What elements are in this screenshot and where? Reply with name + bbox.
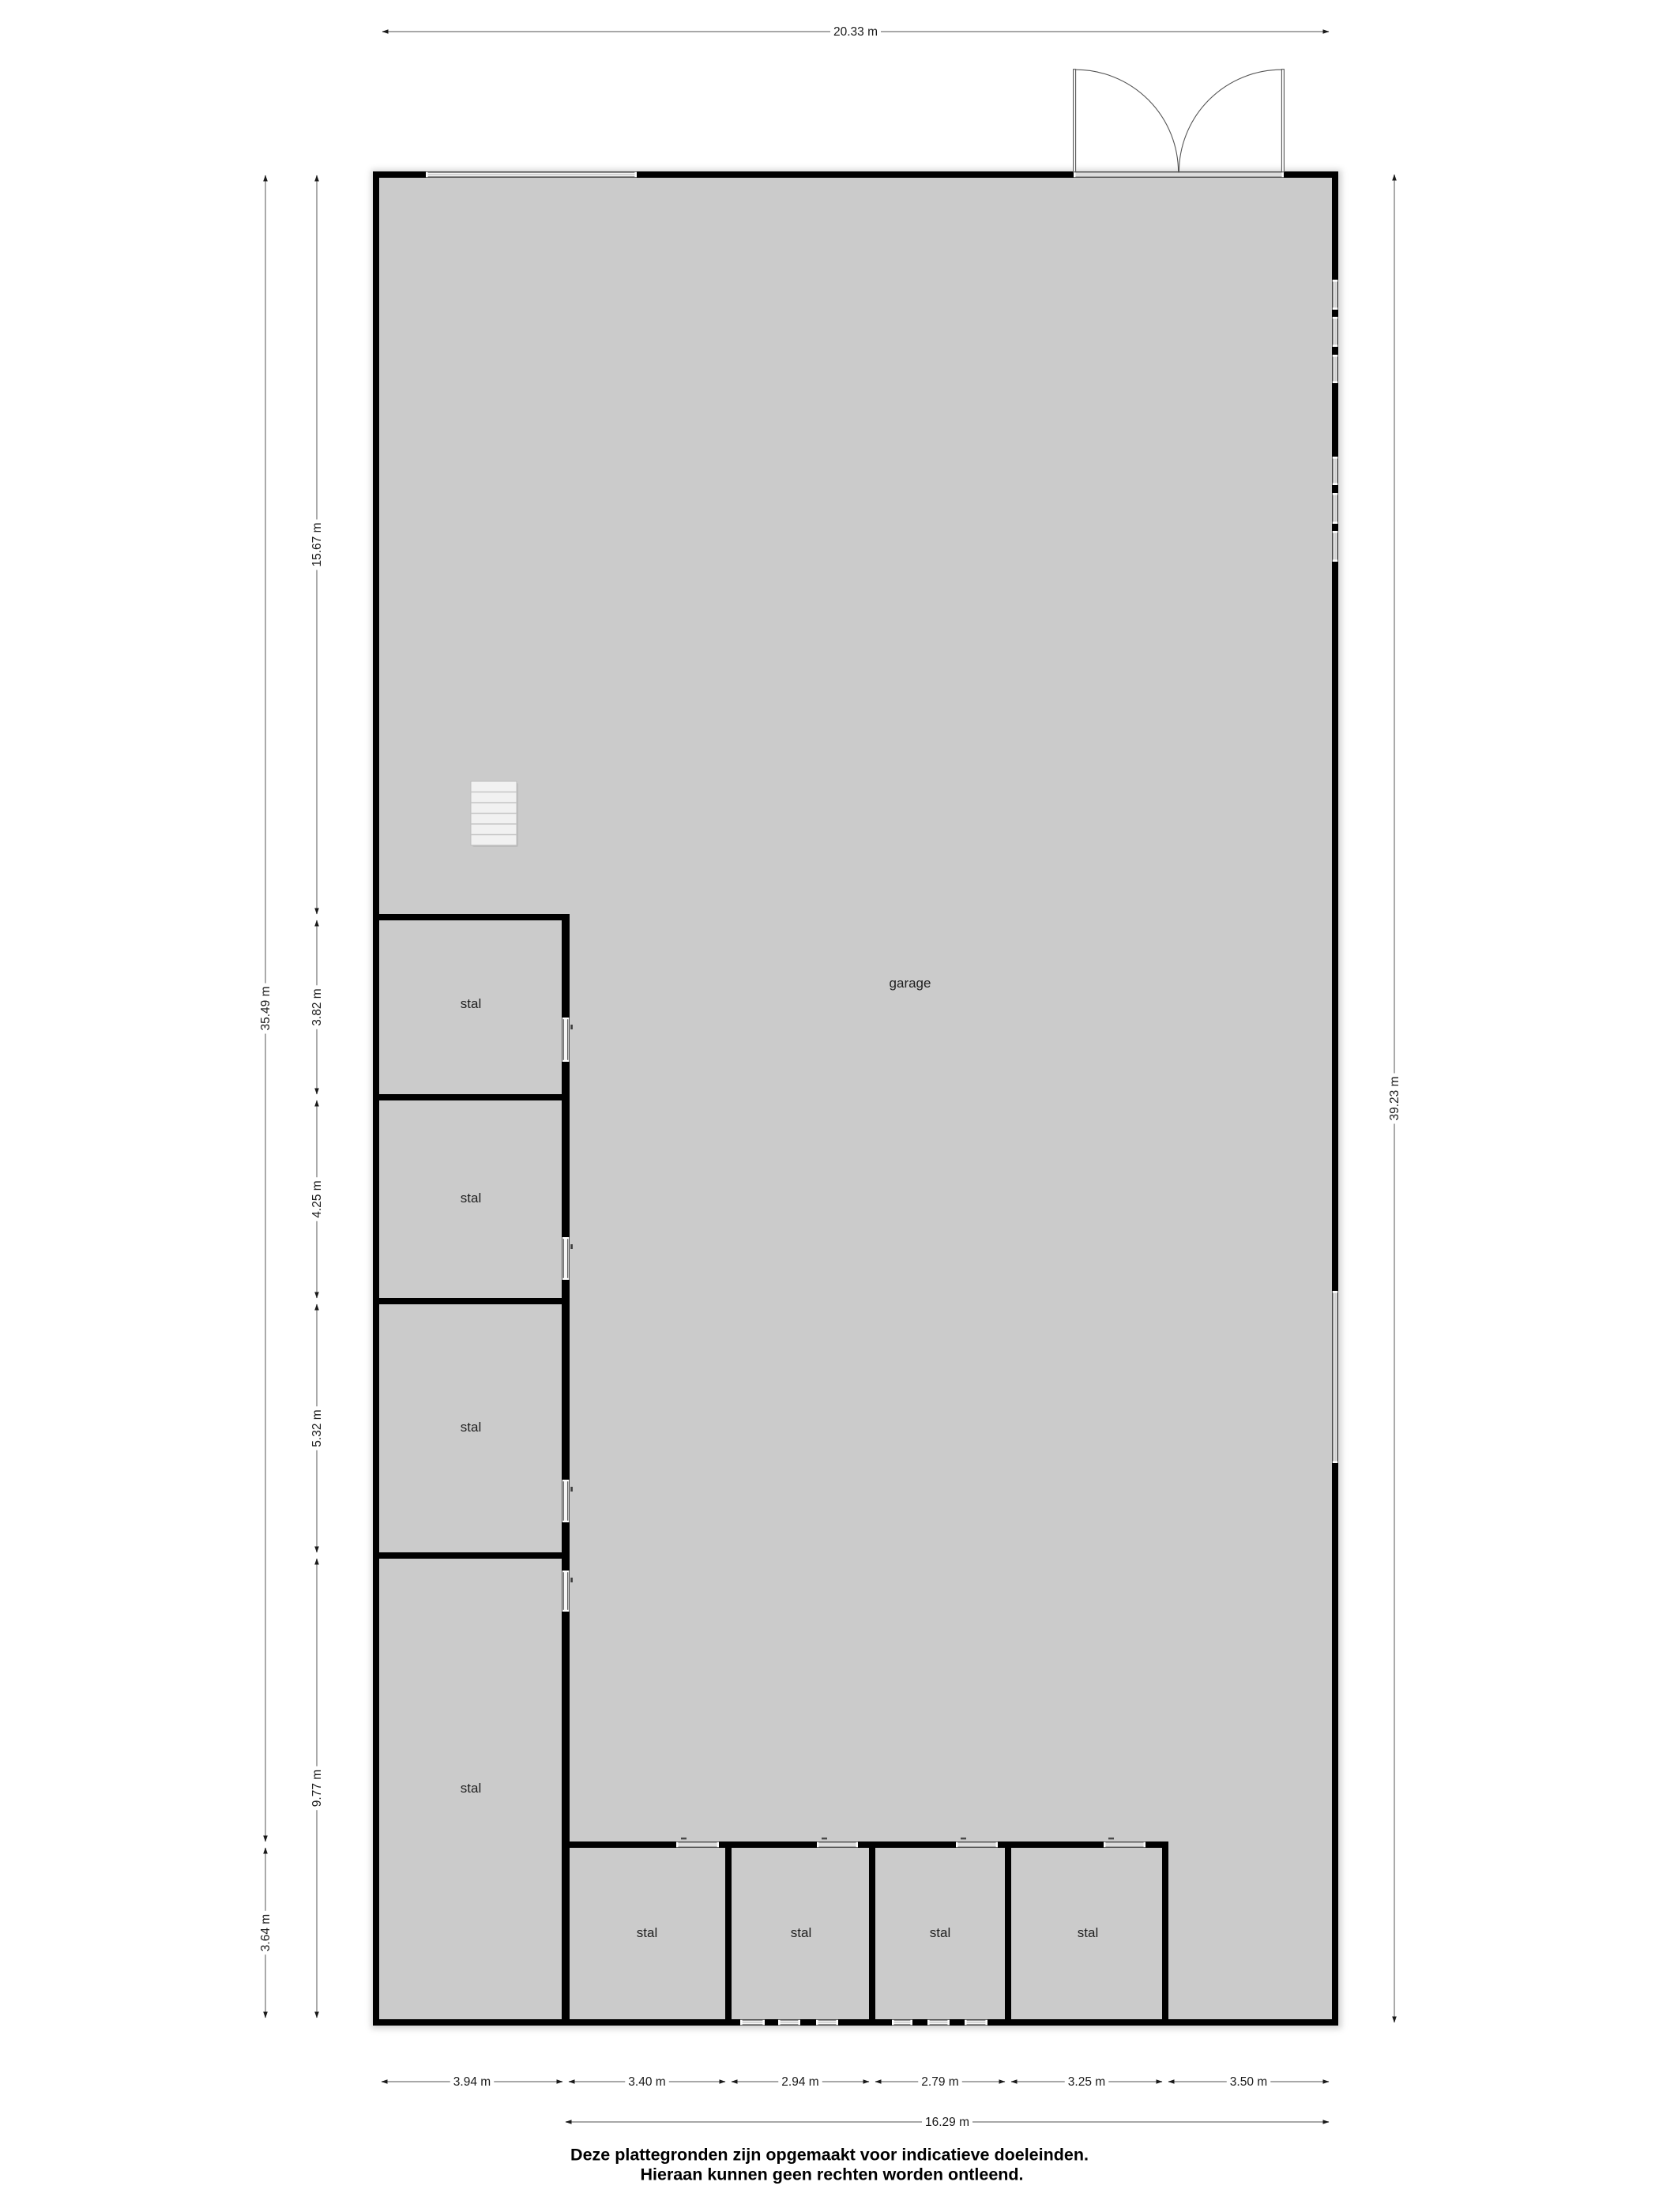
svg-text:stal: stal <box>461 1420 481 1435</box>
svg-text:3.50 m: 3.50 m <box>1230 2075 1267 2089</box>
svg-text:stal: stal <box>930 1925 950 1940</box>
svg-text:15.67 m: 15.67 m <box>310 522 324 566</box>
svg-text:9.77 m: 9.77 m <box>310 1770 324 1807</box>
svg-text:35.49 m: 35.49 m <box>259 986 273 1030</box>
svg-text:3.94 m: 3.94 m <box>453 2075 491 2089</box>
svg-text:stal: stal <box>1078 1925 1098 1940</box>
svg-text:16.29 m: 16.29 m <box>925 2116 969 2129</box>
svg-text:39.23 m: 39.23 m <box>1388 1076 1401 1120</box>
svg-text:stal: stal <box>461 1781 481 1796</box>
svg-text:5.32 m: 5.32 m <box>310 1409 324 1446</box>
svg-text:3.25 m: 3.25 m <box>1068 2075 1105 2089</box>
svg-text:stal: stal <box>637 1925 657 1940</box>
svg-text:stal: stal <box>461 996 481 1011</box>
svg-text:stal: stal <box>461 1191 481 1206</box>
svg-text:Hieraan kunnen geen rechten wo: Hieraan kunnen geen rechten worden ontle… <box>640 2165 1023 2184</box>
svg-text:3.40 m: 3.40 m <box>628 2075 665 2089</box>
svg-text:4.25 m: 4.25 m <box>310 1180 324 1217</box>
svg-text:garage: garage <box>890 976 931 991</box>
svg-text:2.94 m: 2.94 m <box>781 2075 818 2089</box>
svg-text:Deze plattegronden zijn opgema: Deze plattegronden zijn opgemaakt voor i… <box>570 2146 1089 2165</box>
svg-text:stal: stal <box>791 1925 811 1940</box>
svg-text:20.33 m: 20.33 m <box>833 25 878 39</box>
svg-text:3.64 m: 3.64 m <box>259 1914 273 1951</box>
svg-text:3.82 m: 3.82 m <box>310 988 324 1025</box>
svg-text:2.79 m: 2.79 m <box>921 2075 958 2089</box>
